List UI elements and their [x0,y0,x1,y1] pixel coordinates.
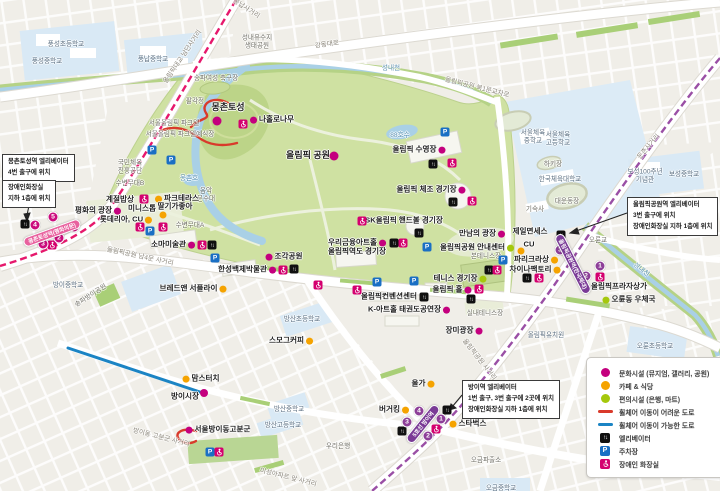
toilet-icon [600,459,610,469]
legend-label: 카페 & 식당 [619,381,653,391]
legend-line [598,410,613,414]
legend-label: 휠체어 이동이 어려운 도로 [619,407,694,417]
legend-icon-parking: P [597,446,613,456]
legend-icon-dot [597,394,613,403]
map-legend: 문화시설 (뮤지엄, 갤러리, 공원)카페 & 식당편의시설 (은행, 마트)휠… [586,357,720,478]
legend-dot [601,368,610,377]
map-canvas[interactable]: 풍성초등학교풍성중학교풍납중학교성내유수지생태공원송파여성 축구장팔각정서울올림… [0,0,720,491]
legend-item: 문화시설 (뮤지엄, 갤러리, 공원) [597,366,720,379]
legend-icon-line [597,410,613,414]
legend-label: 휠체어 이동이 가능한 도로 [619,420,694,430]
legend-label: 문화시설 (뮤지엄, 갤러리, 공원) [619,368,709,378]
legend-dot [601,394,610,403]
elevator-icon: ↑↓ [600,433,610,443]
legend-icon-elevator: ↑↓ [597,433,613,443]
legend-item: 휠체어 이동이 어려운 도로 [597,405,720,418]
legend-label: 주차장 [619,446,638,456]
legend-label: 장애인 화장실 [619,459,659,469]
legend-label: 엘리베이터 [619,433,651,443]
legend-dot [601,381,610,390]
legend-item: 카페 & 식당 [597,379,720,392]
parking-icon: P [600,446,610,456]
legend-label: 편의시설 (은행, 마트) [619,394,680,404]
legend-item: 편의시설 (은행, 마트) [597,392,720,405]
legend-icon-line [597,423,613,427]
legend-line [598,423,613,427]
legend-item: ↑↓엘리베이터 [597,431,720,444]
legend-icon-dot [597,381,613,390]
legend-icon-dot [597,368,613,377]
legend-item: 휠체어 이동이 가능한 도로 [597,418,720,431]
legend-item: P주차장 [597,444,720,457]
legend-icon-toilet [597,459,613,469]
legend-item: 장애인 화장실 [597,457,720,470]
